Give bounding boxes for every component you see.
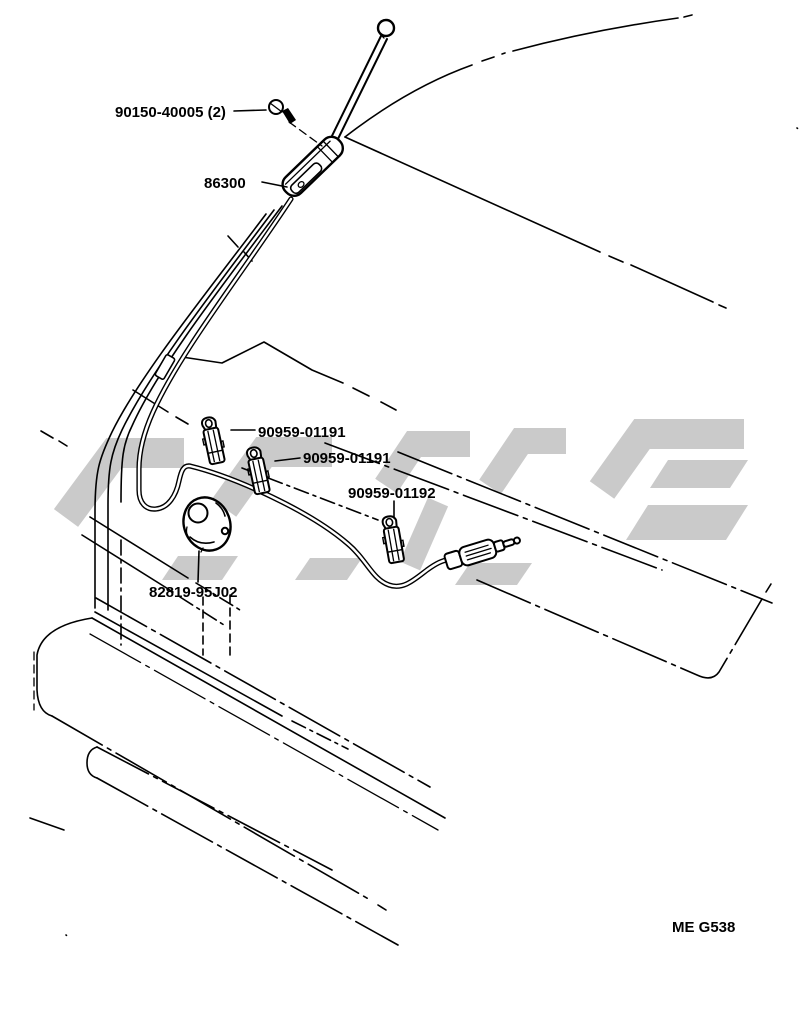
cable-clip-3 bbox=[379, 515, 406, 564]
screw-alignment-dashes bbox=[289, 122, 322, 146]
antenna-base-86300 bbox=[278, 133, 347, 200]
watermark-logo bbox=[66, 434, 748, 585]
label-antenna-86300: 86300 bbox=[204, 175, 246, 192]
label-screw: 90150-40005 (2) bbox=[115, 104, 226, 121]
label-clip-3: 90959-01192 bbox=[348, 485, 436, 502]
cable-clip-1 bbox=[199, 415, 228, 465]
mount-screw bbox=[269, 100, 322, 146]
label-clip-1: 90959-01191 bbox=[258, 424, 346, 441]
figure-code: ME G538 bbox=[672, 919, 735, 936]
label-grommet: 82819-95J02 bbox=[149, 584, 237, 601]
label-clip-2: 90959-01191 bbox=[303, 450, 391, 467]
antenna-mast bbox=[328, 20, 394, 147]
antenna-parts-diagram: 90150-40005 (2) 86300 90959-01191 90959-… bbox=[0, 0, 800, 1034]
parts-diagram-page: 90150-40005 (2) 86300 90959-01191 90959-… bbox=[0, 0, 800, 1034]
